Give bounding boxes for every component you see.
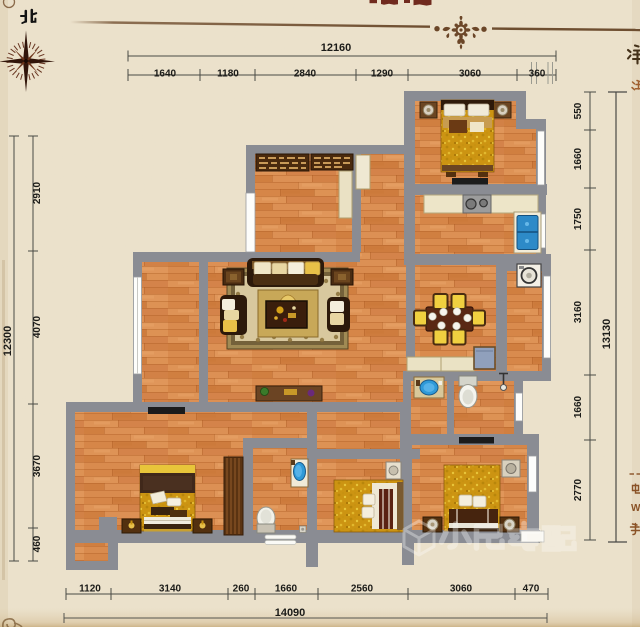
svg-text:260: 260 — [233, 584, 250, 595]
svg-text:2840: 2840 — [294, 69, 317, 80]
svg-text:14090: 14090 — [275, 607, 306, 619]
svg-text:1120: 1120 — [79, 584, 101, 595]
svg-text:3160: 3160 — [573, 300, 584, 323]
svg-text:1180: 1180 — [217, 69, 239, 80]
svg-text:460: 460 — [32, 535, 43, 552]
svg-text:360: 360 — [529, 69, 546, 80]
svg-text:2910: 2910 — [32, 181, 43, 204]
svg-text:12300: 12300 — [2, 326, 14, 357]
svg-text:1660: 1660 — [573, 395, 584, 418]
svg-text:W: W — [631, 503, 640, 514]
svg-text:3060: 3060 — [459, 69, 482, 80]
svg-text:1640: 1640 — [154, 69, 177, 80]
svg-text:2560: 2560 — [351, 584, 374, 595]
svg-text:1660: 1660 — [573, 147, 584, 170]
svg-text:13130: 13130 — [601, 319, 613, 350]
svg-text:550: 550 — [573, 102, 584, 119]
svg-text:3140: 3140 — [159, 584, 182, 595]
svg-text:470: 470 — [523, 584, 540, 595]
svg-text:2770: 2770 — [573, 478, 584, 501]
svg-text:1750: 1750 — [573, 207, 584, 230]
svg-text:4070: 4070 — [32, 315, 43, 338]
svg-text:3670: 3670 — [32, 454, 43, 477]
svg-text:1660: 1660 — [275, 584, 298, 595]
svg-text:12160: 12160 — [321, 42, 352, 54]
svg-text:3060: 3060 — [450, 584, 473, 595]
svg-text:1290: 1290 — [371, 69, 394, 80]
